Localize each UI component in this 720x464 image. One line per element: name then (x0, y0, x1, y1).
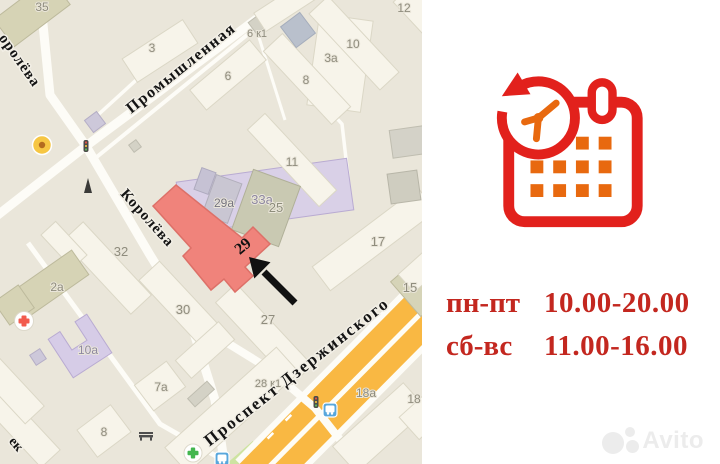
hours-time: 11.00-16.00 (544, 325, 688, 368)
building-label: 17 (371, 234, 385, 249)
building-label: 29а (214, 196, 234, 210)
building-label: 30 (176, 302, 190, 317)
building-label: 11 (286, 155, 299, 169)
map-canvas: 35 3а 3 6 к1 12 6 8 10 11 33а 29а 25 17 … (0, 0, 422, 464)
building-label: 32 (114, 244, 128, 259)
avito-logo-icon (602, 426, 640, 456)
calendar-clock-icon (487, 72, 655, 238)
building-footprint (387, 170, 421, 204)
building-label: 10 (346, 37, 360, 51)
calendar-clock-svg (487, 72, 655, 238)
pharmacy-marker (184, 444, 202, 462)
traffic-light-marker (314, 396, 319, 408)
building-label: 27 (261, 312, 275, 327)
building-label: 7а (154, 380, 168, 394)
hours-days: сб-вс (446, 325, 544, 368)
building-label: 15 (403, 280, 417, 295)
hospital-marker (15, 312, 34, 331)
opening-hours: пн-пт 10.00-20.00 сб-вс 11.00-16.00 (422, 282, 720, 368)
building-label: 18а (356, 386, 376, 400)
building-label: 2а (50, 280, 64, 294)
building-label: 8 (101, 425, 108, 439)
building-label: 10а (78, 343, 98, 357)
building-footprint (389, 126, 422, 158)
building-label: 8 (303, 73, 310, 87)
building-label: 3 (149, 41, 156, 55)
building-label: 3а (324, 51, 338, 65)
hours-panel: пн-пт 10.00-20.00 сб-вс 11.00-16.00 Avit… (422, 0, 720, 464)
bus-stop-marker (215, 452, 229, 464)
traffic-light-marker (84, 140, 89, 152)
building-label: 6 к1 (247, 28, 267, 40)
building-label: 25 (269, 200, 283, 215)
building-label: 35 (35, 0, 49, 14)
map: 35 3а 3 6 к1 12 6 8 10 11 33а 29а 25 17 … (0, 0, 422, 464)
building-label: 6 (225, 69, 232, 83)
watermark-text: Avito (642, 427, 704, 455)
clock (502, 72, 575, 154)
hours-row-weekend: сб-вс 11.00-16.00 (446, 325, 720, 368)
hours-row-weekdays: пн-пт 10.00-20.00 (446, 282, 720, 325)
bus-stop-marker (323, 403, 337, 417)
hours-days: пн-пт (446, 282, 544, 325)
hours-time: 10.00-20.00 (544, 282, 690, 325)
avito-watermark: Avito (602, 426, 704, 456)
calendar-binder-ring (592, 82, 613, 120)
cafe-marker (33, 136, 52, 155)
building-label: 12 (397, 1, 411, 15)
listing-image: 35 3а 3 6 к1 12 6 8 10 11 33а 29а 25 17 … (0, 0, 720, 464)
clock-center-dot (533, 113, 543, 123)
building-label: 18 (407, 392, 421, 406)
